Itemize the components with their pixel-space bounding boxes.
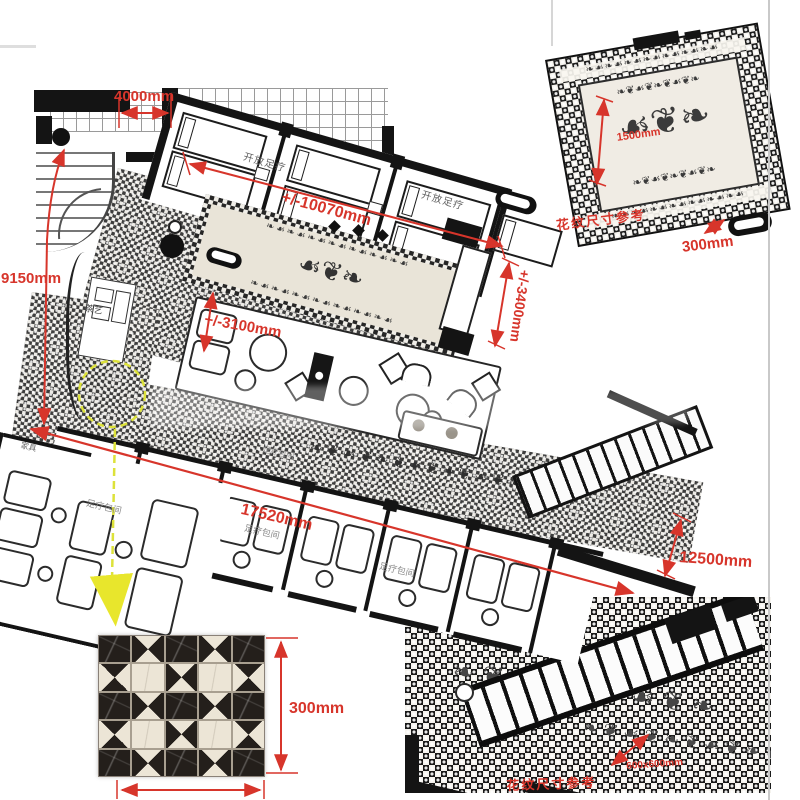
stool — [232, 367, 258, 393]
round-table — [336, 373, 372, 409]
side-table — [314, 568, 336, 590]
sofa — [55, 554, 103, 611]
sofa — [0, 545, 35, 588]
wall-segment — [633, 30, 680, 50]
side-table — [396, 587, 418, 609]
detail-ornament: ❧❦☙❦❧❦☙❦❧ — [597, 156, 751, 196]
tile-black — [166, 636, 197, 662]
side-table — [49, 506, 68, 525]
side-table — [113, 539, 135, 561]
tile-white — [199, 664, 230, 690]
tile-white — [132, 721, 163, 747]
floor-marker — [168, 220, 182, 234]
wall-segment — [369, 611, 439, 633]
dim-label-300-detail: 300mm — [681, 233, 734, 256]
tile-bowtie — [166, 721, 197, 747]
side-table — [36, 564, 55, 583]
sofa — [188, 339, 232, 377]
dim-line-3400 — [495, 263, 509, 346]
column — [52, 128, 70, 146]
door-jamb — [383, 498, 399, 512]
door-jamb — [134, 441, 150, 455]
page-edge-line — [0, 45, 36, 48]
tile-bowtie — [132, 636, 163, 662]
page-edge-line — [551, 0, 553, 46]
tile-white — [132, 664, 163, 690]
tile-bowtie — [99, 664, 130, 690]
tile-white — [199, 721, 230, 747]
detail-bottom-caption: 花纹尺寸参考 — [506, 772, 597, 794]
tile-bowtie — [166, 664, 197, 690]
wall-segment — [36, 116, 52, 144]
recliner — [465, 553, 507, 605]
wall-segment — [204, 571, 274, 593]
dim-label-300-tile: 300mm — [289, 700, 344, 718]
tile-black — [233, 636, 264, 662]
sofa — [2, 469, 53, 512]
doorway-gap — [500, 193, 531, 210]
tile-black — [99, 636, 130, 662]
wall-segment — [405, 779, 522, 793]
recliner — [500, 561, 542, 613]
doorway-gap — [211, 250, 237, 265]
doorway-gap — [733, 217, 764, 231]
dim-label-12500: 12500mm — [679, 549, 753, 572]
wall-segment — [287, 591, 357, 613]
stair-newel — [455, 683, 474, 702]
tile-black — [166, 750, 197, 776]
tile-bowtie — [199, 693, 230, 719]
side-table — [479, 606, 501, 628]
floorplan-canvas: ❧❦☙❦❧❦☙❦❧❦☙❦❧ — [0, 0, 800, 800]
tile-black — [99, 693, 130, 719]
tile-bowtie — [99, 721, 130, 747]
table — [111, 290, 131, 324]
tile-sample-photo — [98, 635, 265, 777]
door-jamb — [217, 460, 233, 474]
tile-bowtie — [199, 750, 230, 776]
recliner — [417, 542, 459, 594]
side-table — [231, 549, 253, 571]
sofa — [0, 506, 44, 549]
dim-label-9150: 9150mm — [1, 270, 61, 287]
tile-black — [166, 693, 197, 719]
wall-segment — [684, 30, 701, 41]
tile-bowtie — [132, 750, 163, 776]
sofa — [123, 566, 184, 637]
dim-label-4000: 4000mm — [114, 88, 174, 105]
door-jamb — [465, 518, 481, 532]
tile-black — [233, 750, 264, 776]
tile-bowtie — [233, 721, 264, 747]
tile-bowtie — [233, 664, 264, 690]
tile-bowtie — [132, 693, 163, 719]
sofa — [139, 498, 200, 569]
tile-bowtie — [199, 636, 230, 662]
door-jamb — [300, 479, 316, 493]
tile-black — [233, 693, 264, 719]
dim-label-3400: +/-3400mm — [504, 250, 535, 361]
tile-black — [99, 750, 130, 776]
page-edge-line — [768, 0, 770, 800]
table — [94, 287, 114, 304]
column — [160, 234, 184, 258]
detail-field: ❧❦☙❦❧❦☙❦❧ ☙❦❧ ❧❦☙❦❧❦☙❦❧ — [578, 57, 760, 213]
recliner — [334, 523, 376, 575]
